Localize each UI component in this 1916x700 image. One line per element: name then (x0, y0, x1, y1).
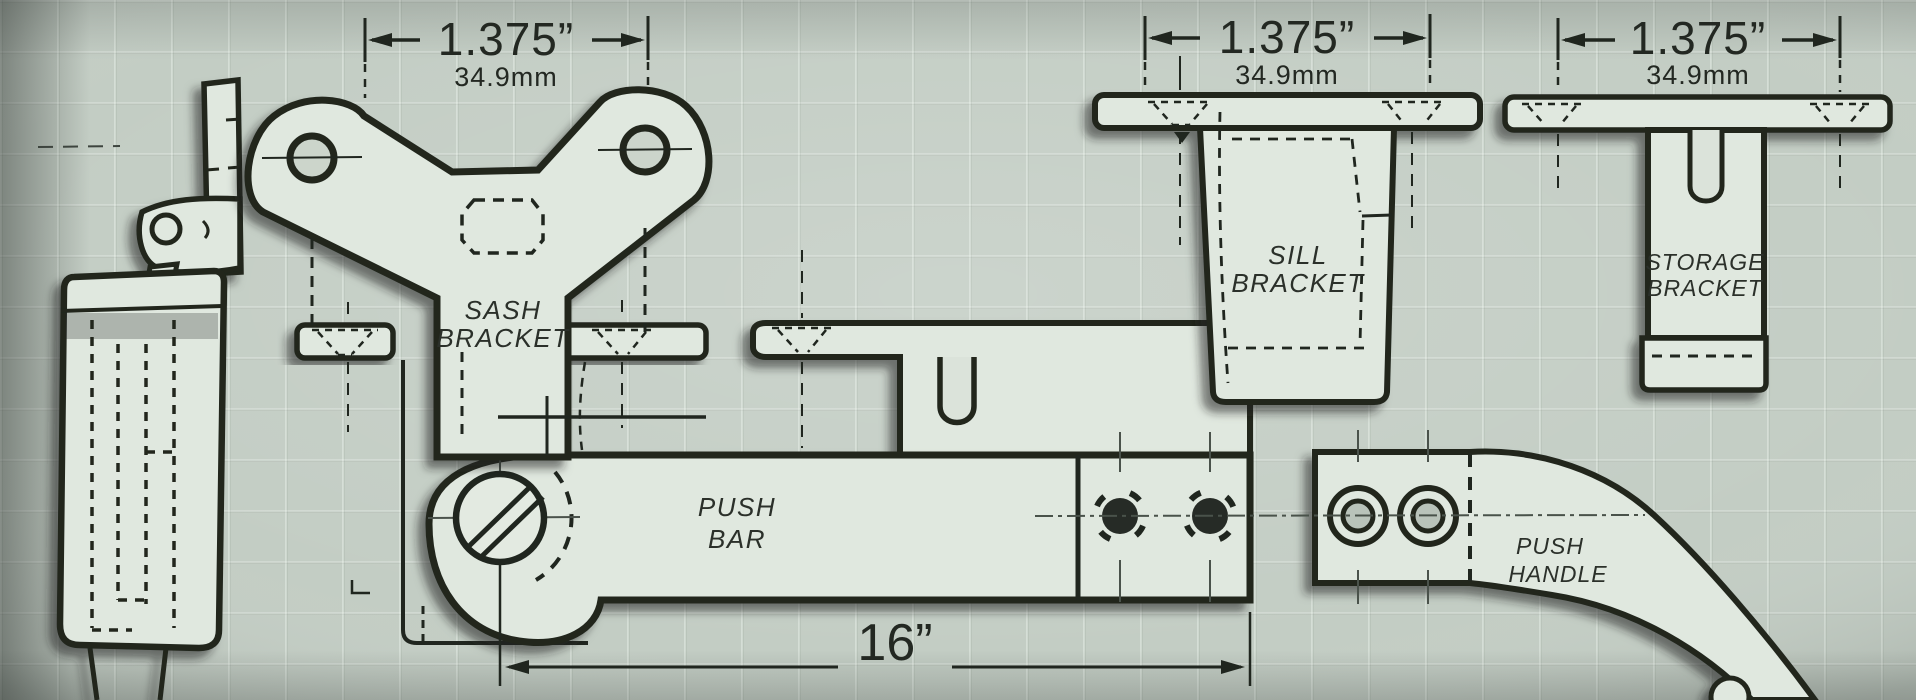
push-handle-grip-hole (1711, 678, 1749, 700)
push-handle-label-2: HANDLE (1508, 561, 1607, 587)
storage-bracket-label-1: STORAGE (1645, 249, 1764, 275)
push-handle-label-1: PUSH (1516, 533, 1584, 559)
storage-width-mm: 34.9mm (1646, 60, 1750, 90)
push-bar-length: 16” (857, 614, 932, 672)
sill-bracket-label-1: SILL (1268, 240, 1328, 270)
storage-bracket-slot (1690, 130, 1722, 201)
sash-width-inches: 1.375” (438, 13, 574, 65)
storage-width-inches: 1.375” (1630, 12, 1766, 64)
storage-bracket-label-2: BRACKET (1647, 275, 1764, 301)
sash-bracket-label-2: BRACKET (436, 323, 570, 353)
sill-bracket-label-2: BRACKET (1231, 268, 1365, 298)
sill-width-inches: 1.375” (1219, 11, 1355, 63)
push-bar-label-2: BAR (708, 524, 766, 554)
side-view-operator-body (60, 271, 224, 700)
diagram-canvas: 1.375” 34.9mm (0, 0, 1916, 700)
hardware-parts-diagram: 1.375” 34.9mm (0, 0, 1916, 700)
sill-width-mm: 34.9mm (1235, 60, 1339, 90)
sash-bracket-label-1: SASH (465, 295, 542, 325)
sash-width-mm: 34.9mm (454, 62, 558, 92)
push-bar-label-1: PUSH (698, 492, 776, 522)
